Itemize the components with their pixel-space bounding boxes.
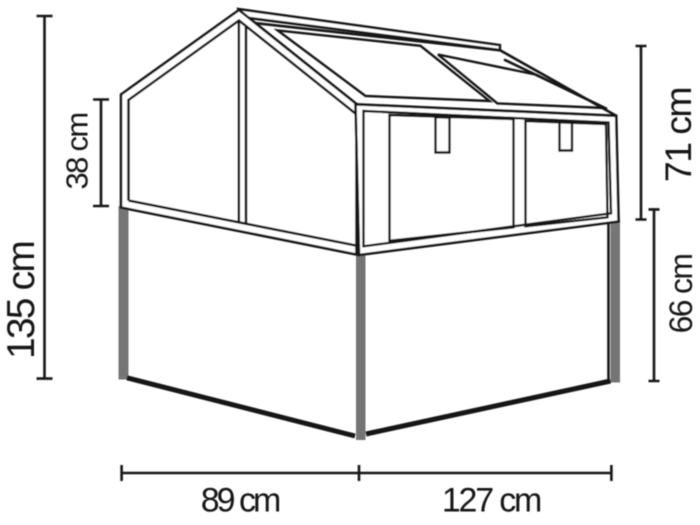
svg-text:66 cm: 66 cm bbox=[663, 255, 699, 334]
svg-text:135 cm: 135 cm bbox=[0, 242, 43, 359]
svg-text:71 cm: 71 cm bbox=[657, 88, 699, 182]
svg-text:127 cm: 127 cm bbox=[442, 482, 541, 520]
svg-text:89 cm: 89 cm bbox=[201, 482, 280, 520]
svg-text:38 cm: 38 cm bbox=[60, 114, 95, 190]
